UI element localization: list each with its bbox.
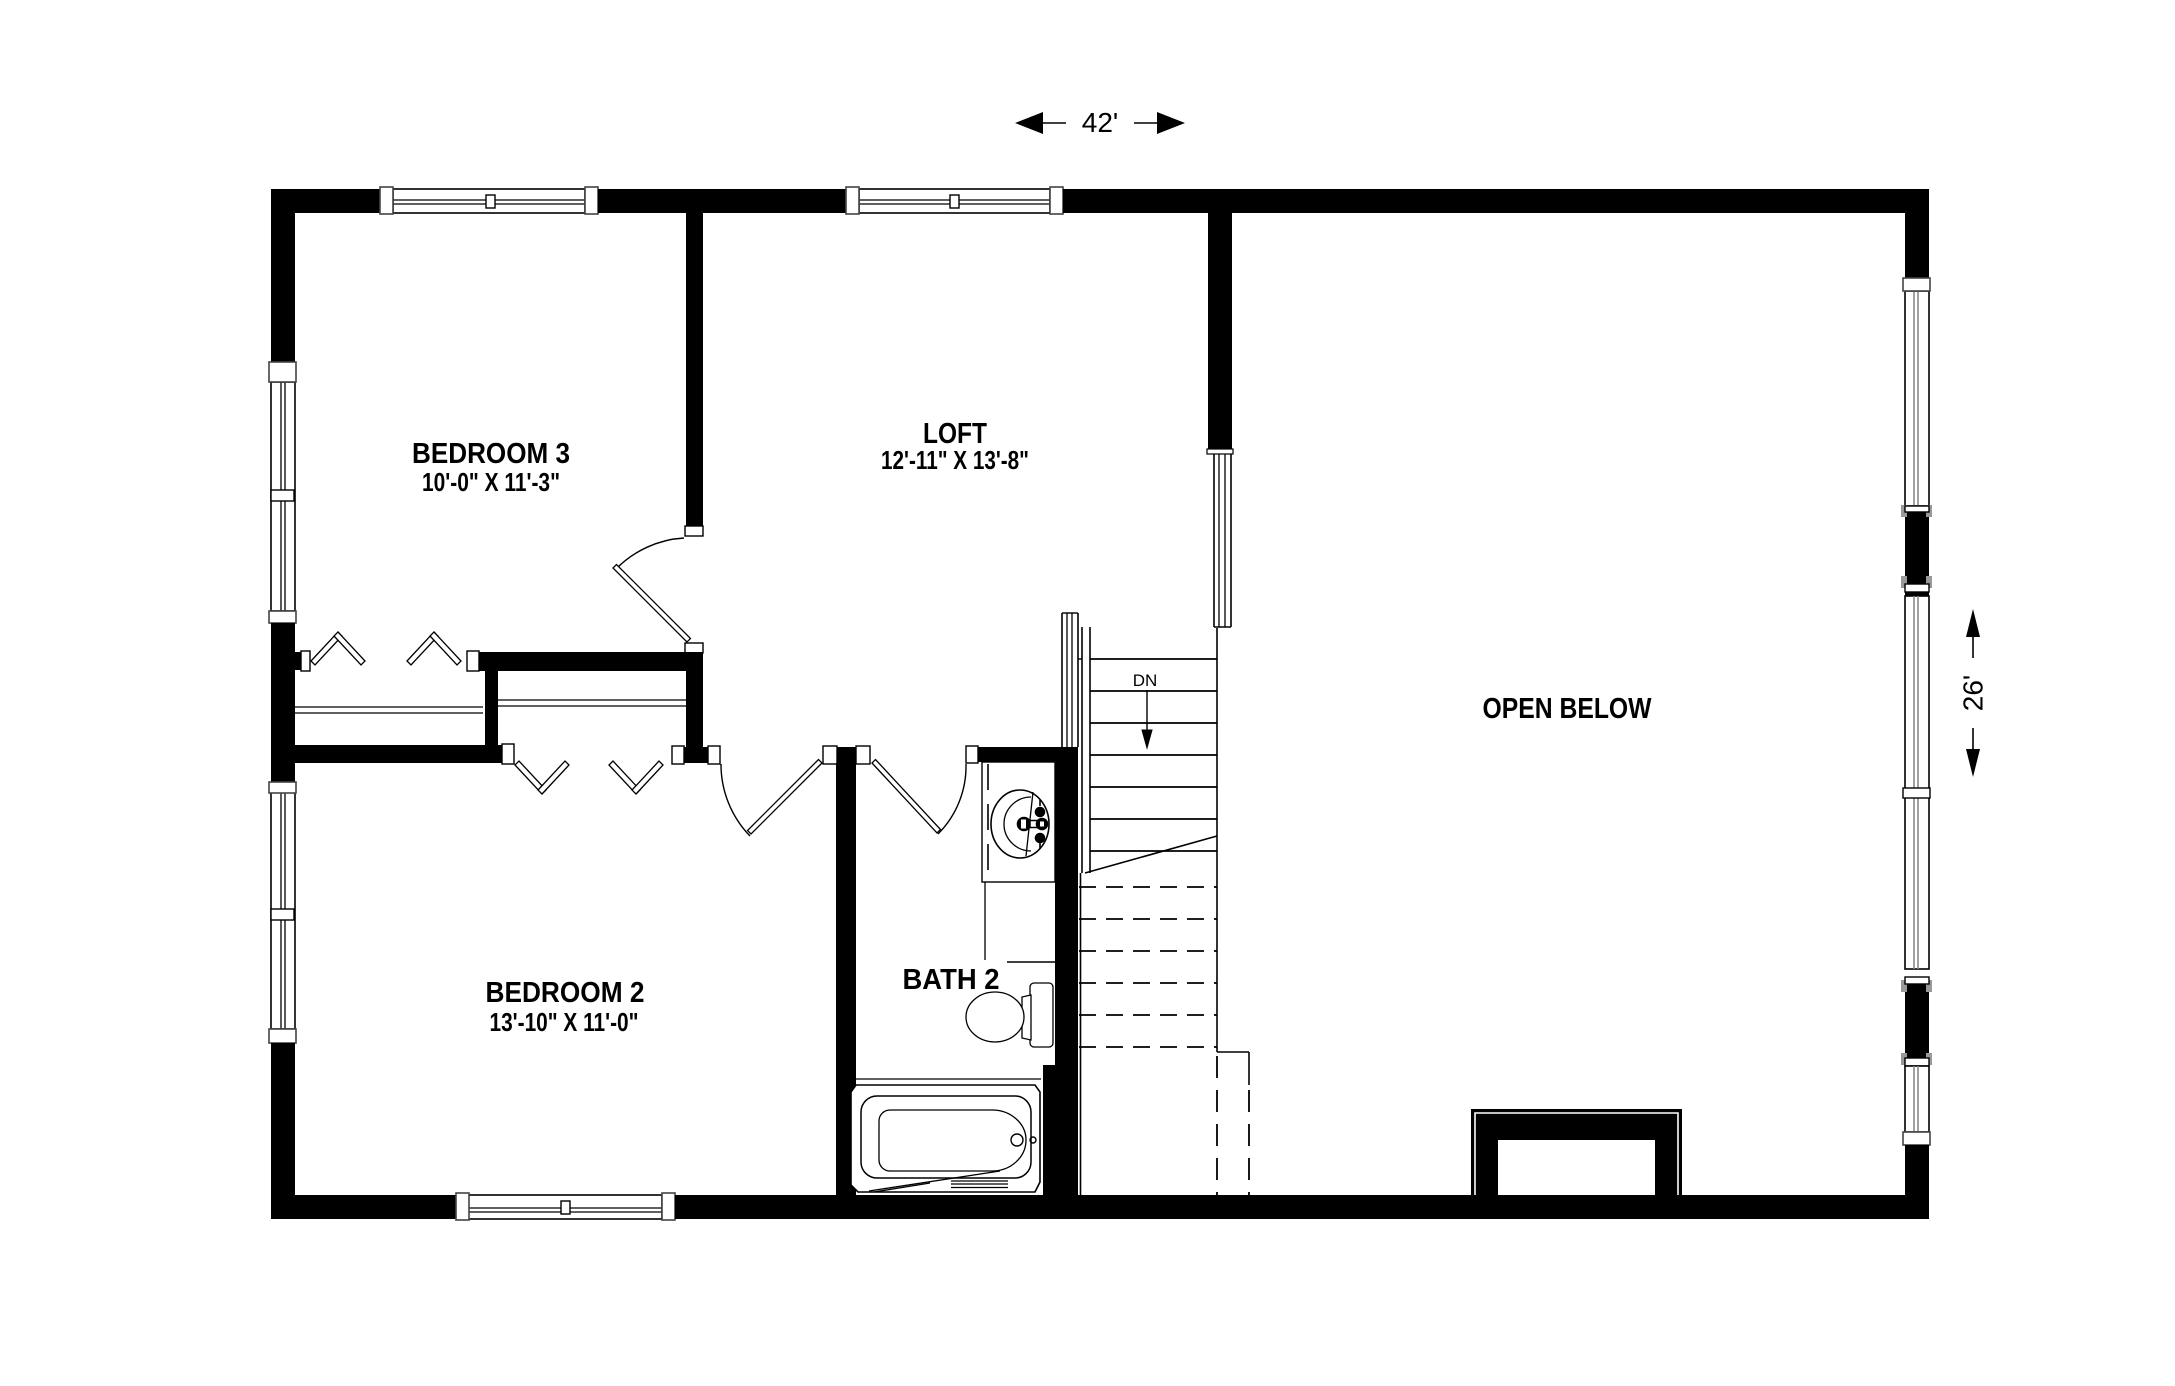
svg-text:BEDROOM 3: BEDROOM 3 [412,438,570,470]
svg-text:13'-10" X 11'-0": 13'-10" X 11'-0" [490,1007,639,1037]
svg-text:OPEN BELOW: OPEN BELOW [1483,693,1653,725]
svg-text:10'-0" X 11'-3": 10'-0" X 11'-3" [422,467,560,497]
svg-text:BATH 2: BATH 2 [903,964,1000,996]
svg-text:BEDROOM 2: BEDROOM 2 [486,977,645,1009]
svg-text:12'-11" X 13'-8": 12'-11" X 13'-8" [881,445,1029,475]
svg-text:42': 42' [1082,107,1119,138]
svg-text:26': 26' [1958,675,1989,712]
svg-text:DN: DN [1133,671,1158,690]
